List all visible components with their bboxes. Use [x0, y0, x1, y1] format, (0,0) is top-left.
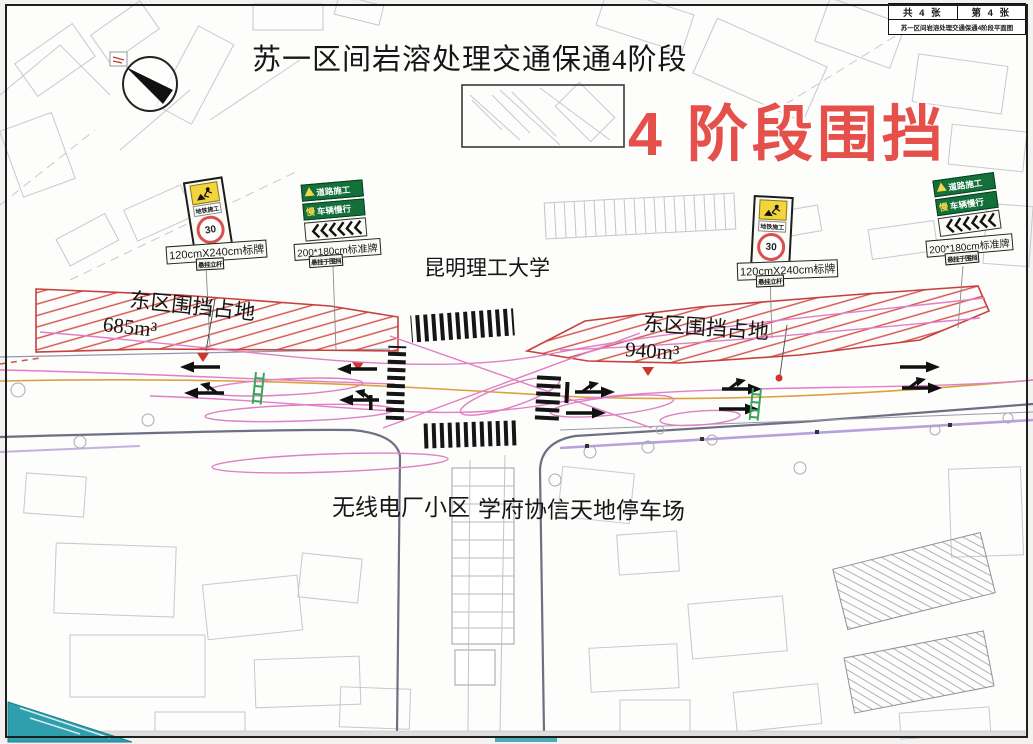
metro-construction-sign-east: 地铁施工 30 [750, 195, 794, 266]
slow-char: 慢 [305, 205, 315, 219]
roadwork-line2-text: 车辆慢行 [316, 202, 351, 217]
label-residential: 无线电厂小区 [332, 488, 470, 522]
main-title: 苏一区间岩溶处理交通保通4阶段 [252, 36, 688, 78]
sign-note: 悬挂立杆 [756, 275, 784, 288]
title-block: 共 4 张 第 4 张 苏一区间岩溶处理交通保通4阶段平面图 [888, 3, 1026, 35]
roadwork-digger-icon [759, 199, 788, 220]
label-parking: 学府协信天地停车场 [478, 490, 685, 526]
sign-size-label: 120cmX240cm标牌 [737, 259, 839, 281]
zone-west-area: 685m³ [102, 312, 158, 342]
speed-limit-value: 30 [765, 241, 777, 253]
drawing-name: 苏一区间岩溶处理交通保通4阶段平面图 [889, 20, 1025, 34]
north-arrow-icon [110, 52, 177, 111]
roadwork-line1-text: 道路施工 [948, 176, 983, 193]
sheet-total: 共 4 张 [889, 4, 958, 19]
sign-note: 悬挂于围挡 [309, 254, 344, 268]
survey-rectangle [462, 85, 624, 147]
sheet-number-row: 共 4 张 第 4 张 [889, 4, 1025, 20]
warning-triangle-icon [304, 187, 315, 199]
speed-limit-sign: 30 [195, 214, 227, 246]
traffic-signal-icons [253, 372, 761, 421]
stage-banner: 4 阶段围挡 [628, 84, 947, 173]
roadwork-line1-text: 道路施工 [316, 183, 351, 198]
label-university: 昆明理工大学 [424, 252, 550, 282]
crosswalks [369, 308, 570, 448]
roadwork-sign-east: 道路施工 慢 车辆慢行 [932, 172, 1001, 237]
zone-east-area: 940m³ [624, 337, 680, 365]
drawing-sheet: 共 4 张 第 4 张 苏一区间岩溶处理交通保通4阶段平面图 苏一区间岩溶处理交… [0, 0, 1033, 744]
warning-triangle-icon [936, 182, 947, 194]
lane-arrows [180, 362, 942, 419]
sign-note: 悬挂立杆 [196, 257, 225, 270]
label-zone-east: 东区围挡占地 940m³ [624, 309, 769, 373]
metro-sign-label: 地铁施工 [758, 220, 787, 232]
sheet-index: 第 4 张 [958, 4, 1026, 19]
speed-limit-value: 30 [204, 223, 217, 236]
speed-limit-sign: 30 [756, 232, 785, 261]
slow-char: 慢 [938, 200, 949, 214]
roadwork-sign-west: 道路施工 慢 车辆慢行 [301, 179, 368, 241]
roadwork-line2-text: 车辆慢行 [949, 195, 984, 212]
